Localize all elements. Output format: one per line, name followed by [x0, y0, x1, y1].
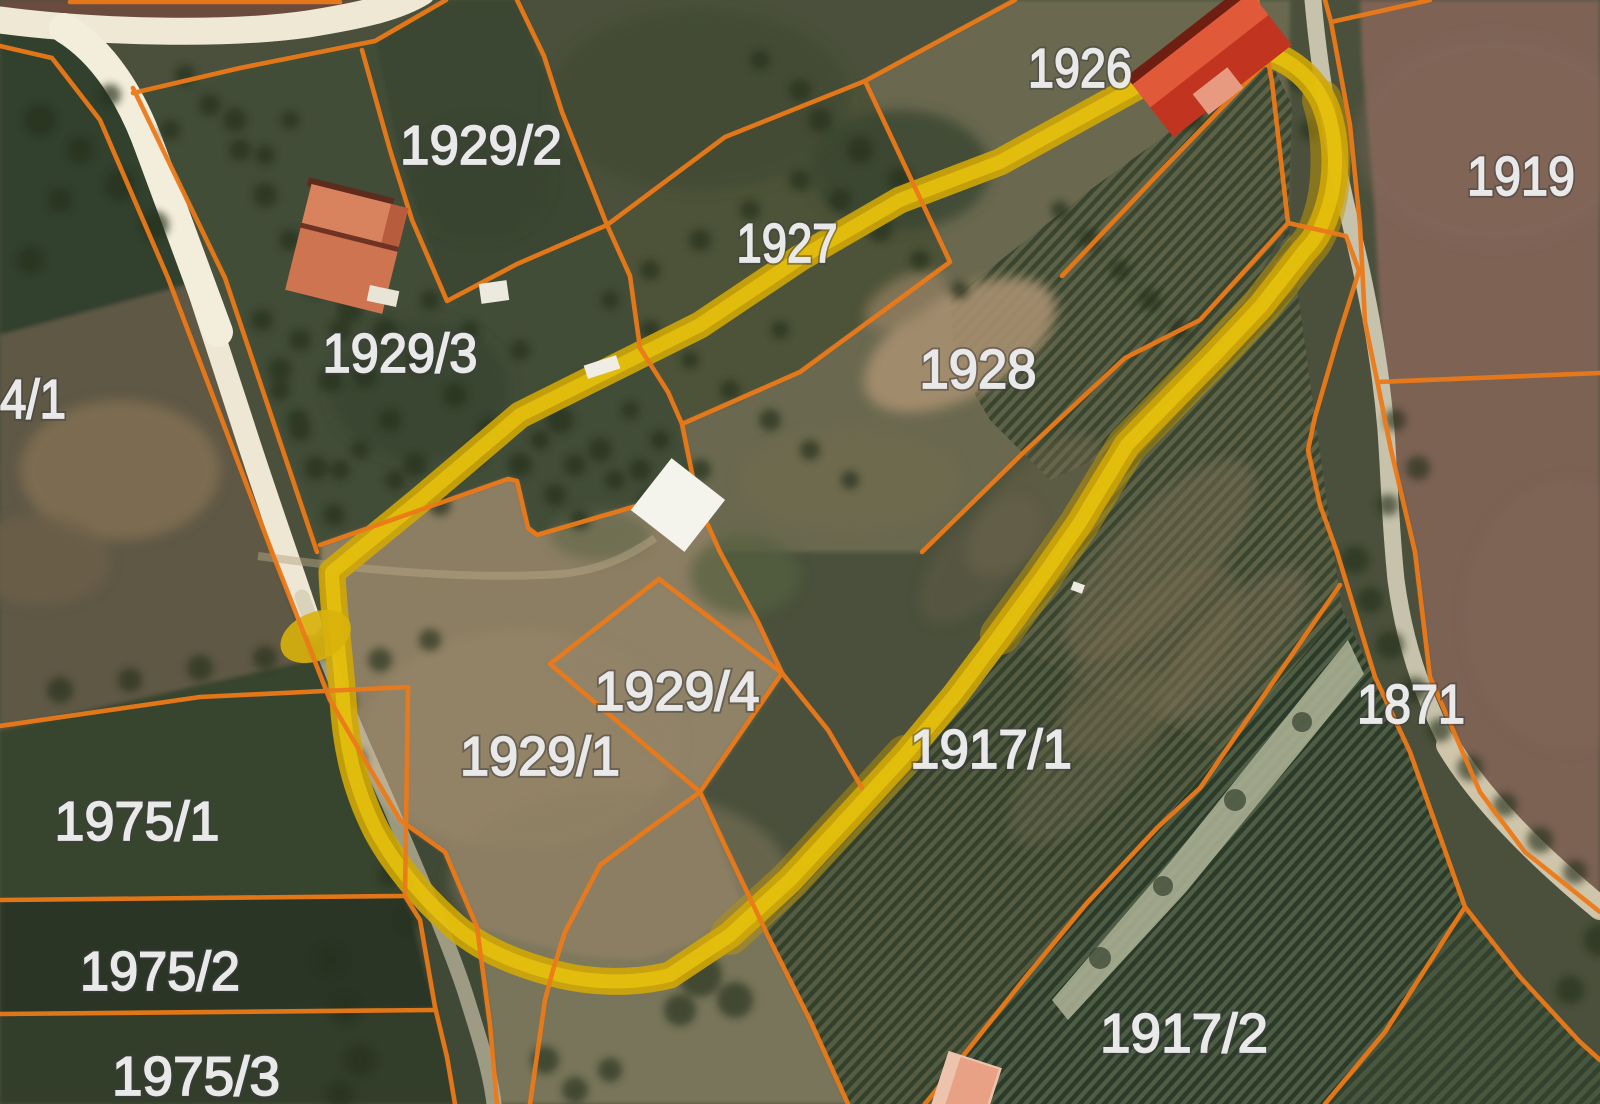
svg-text:1871: 1871 — [1357, 673, 1465, 735]
svg-text:1926: 1926 — [1028, 37, 1132, 99]
svg-text:1929/1: 1929/1 — [460, 725, 620, 787]
svg-text:1928: 1928 — [920, 338, 1037, 400]
svg-text:1917/2: 1917/2 — [1100, 1002, 1268, 1064]
svg-text:1975/3: 1975/3 — [112, 1045, 280, 1104]
svg-text:1975/2: 1975/2 — [80, 940, 240, 1002]
svg-text:1929/4: 1929/4 — [595, 660, 760, 722]
svg-text:1975/1: 1975/1 — [55, 790, 220, 852]
svg-text:1917/1: 1917/1 — [910, 718, 1072, 780]
svg-text:1929/3: 1929/3 — [323, 322, 478, 384]
svg-text:4/1: 4/1 — [0, 368, 66, 430]
svg-text:1929/2: 1929/2 — [400, 114, 562, 176]
svg-text:1919: 1919 — [1467, 145, 1575, 207]
svg-text:1927: 1927 — [737, 212, 838, 274]
